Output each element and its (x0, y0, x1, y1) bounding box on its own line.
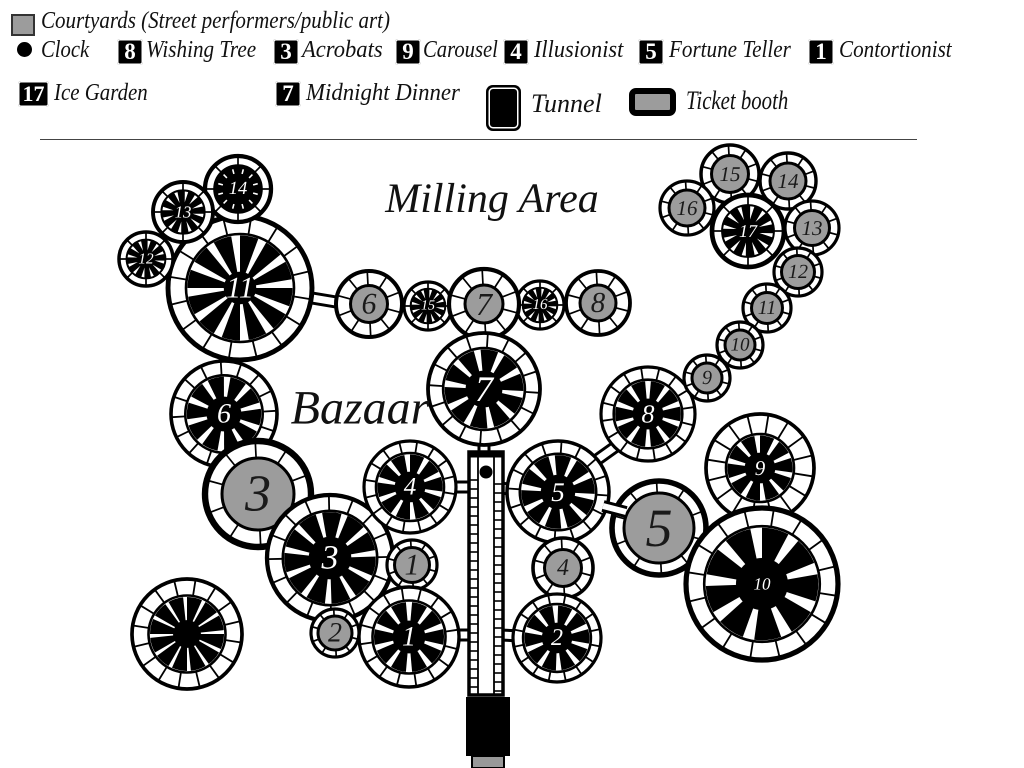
svg-text:3: 3 (244, 465, 271, 522)
svg-text:5: 5 (551, 477, 565, 507)
svg-text:5: 5 (645, 498, 672, 558)
svg-text:7: 7 (476, 286, 494, 322)
svg-text:Milling Area: Milling Area (384, 176, 599, 222)
svg-text:2: 2 (328, 617, 342, 648)
svg-text:1: 1 (402, 621, 416, 652)
svg-text:10: 10 (753, 574, 771, 593)
svg-text:17: 17 (739, 221, 758, 241)
svg-text:9: 9 (702, 367, 712, 389)
svg-text:11: 11 (758, 297, 777, 319)
svg-text:12: 12 (138, 250, 154, 267)
svg-text:13: 13 (175, 202, 192, 221)
svg-text:6: 6 (361, 287, 376, 320)
svg-text:15: 15 (719, 162, 740, 186)
svg-text:14: 14 (777, 169, 799, 193)
svg-text:13: 13 (801, 216, 822, 240)
svg-text:11: 11 (226, 271, 254, 304)
svg-text:3: 3 (320, 539, 338, 576)
svg-text:16: 16 (532, 297, 548, 313)
svg-text:16: 16 (676, 196, 698, 220)
svg-text:7: 7 (475, 369, 495, 409)
svg-text:8: 8 (591, 287, 606, 319)
svg-text:Bazaar: Bazaar (291, 381, 430, 434)
svg-text:4: 4 (404, 473, 417, 500)
svg-text:9: 9 (755, 456, 766, 480)
svg-text:12: 12 (788, 261, 808, 283)
svg-text:4: 4 (557, 555, 569, 581)
svg-text:8: 8 (641, 399, 654, 428)
svg-text:15: 15 (421, 298, 435, 313)
svg-text:1: 1 (404, 548, 419, 581)
svg-text:14: 14 (229, 179, 248, 199)
svg-text:2: 2 (551, 625, 563, 651)
svg-text:6: 6 (217, 398, 231, 429)
svg-text:10: 10 (730, 334, 750, 355)
